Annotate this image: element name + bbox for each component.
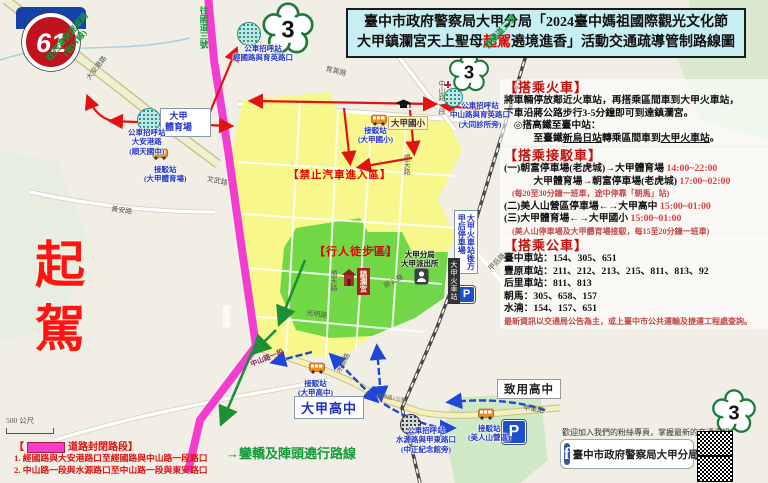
qr-code: [697, 456, 733, 482]
police-icon: [414, 268, 429, 285]
bus-stop-zhongshan-yuying: 公車招呼站 中山路與育英路口 (大同診所旁): [450, 101, 510, 129]
dajia-highschool-label: 大甲高中: [294, 396, 364, 419]
panel-text-segment: (每20至30分鐘一班車，途中停靠「朝馬」站): [504, 189, 669, 198]
panel-line: ◎搭高鐵至臺中站：: [504, 120, 768, 133]
panel-line: (一)朝富停車場(老虎城)→大甲體育場 14:00~22:00: [504, 163, 768, 176]
svg-text:3: 3: [464, 62, 474, 83]
panel-line: 后里車站：811、813: [504, 278, 768, 291]
stadium-label: 大甲 體育場: [160, 108, 211, 137]
panel-text-segment: (美人山停車場及大甲體育場接駁，每15至20分鐘一班車): [504, 227, 709, 236]
temple-icon: [341, 268, 357, 288]
procession-route-note: →鑾轎及陣頭遶行路線: [226, 443, 356, 462]
shuttle-stop-meirenshan: 接駁站 (美人山營區): [468, 424, 511, 443]
panel-text-segment: 豐原車站：211、212、213、215、811、813、92: [504, 266, 709, 277]
panel-line: (三)大甲體育場←→大甲國小 15:00~01:00: [504, 213, 768, 226]
panel-body: 臺中車站：154、305、651豐原車站：211、212、213、215、811…: [504, 253, 768, 328]
panel-line: (每20至30分鐘一班車，途中停靠「朝馬」站): [504, 188, 768, 201]
panel-text-segment: 后里車站：811、813: [504, 278, 592, 289]
panel-line: 至臺鐵新烏日站轉乘區間車到大甲火車站。: [504, 133, 768, 146]
panel-body: 將車輛停放鄰近火車站，再搭乘區間車到大甲火車站，下車沿蔣公路步行3-5分鐘即可到…: [504, 95, 768, 145]
route-jingguo: 經國路: [221, 305, 232, 328]
panel-line: 下車沿蔣公路步行3-5分鐘即可到達鎮瀾宮。: [504, 108, 768, 121]
departure-big-label: 起駕: [20, 238, 92, 366]
shuttle-stop-stadium: 接駁站 (大甲體育場): [144, 165, 187, 184]
panel-line: 水湳：154、157、651: [504, 303, 768, 316]
bus-stop-shuiyuan: 公車招呼站 水源路與甲東路口 (中正紀念館旁): [396, 426, 456, 454]
facebook-search-box[interactable]: f 臺中市政府警察局大甲分局: [560, 439, 694, 469]
scale-line: [6, 428, 54, 434]
panel-line: 朝馬：305、658、157: [504, 291, 768, 304]
bus-stop-daangang: 公車招呼站 大安港路 (順天國中): [128, 128, 166, 156]
panel-body: (一)朝富停車場(老虎城)→大甲體育場 14:00~22:00 大甲體育場→朝富…: [504, 163, 768, 238]
panel-header: 【搭乘火車】: [504, 80, 768, 95]
facebook-page-name: 臺中市政府警察局大甲分局: [573, 447, 699, 462]
graduation-cap-icon: [395, 99, 412, 110]
panel-line: 大甲體育場→朝富停車場(老虎城) 17:00~02:00: [504, 176, 768, 189]
bus-icon: [371, 114, 387, 126]
shuttle-stop-highschool: 接駁站 (大甲高中): [298, 379, 333, 398]
panel-line: (二)美人山營區停車場←→大甲高中 15:00~01:00: [504, 201, 768, 214]
panel-line: 豐原車站：211、212、213、215、811、813、92: [504, 266, 768, 279]
police-station-label: 大甲分局 大甲派出所: [401, 250, 439, 269]
legend-item: 1. 經國路與大安港路口至經國路與中山路一段路口: [14, 453, 208, 465]
route-zhongshan-2: 中山路一段: [437, 80, 447, 115]
bus-icon: [478, 408, 494, 420]
panel-text-segment: ◎搭高鐵至臺中站：: [504, 120, 601, 131]
panel-text-segment: (一)朝富停車場(老虎城)→大甲體育場: [504, 163, 666, 174]
qr-code: [697, 431, 733, 456]
title-line-2: 大甲鎮瀾宮天上聖母: [357, 35, 483, 50]
bus-icon: [309, 362, 325, 374]
title-line-2-rest: 遶境進香」活動交通疏導管制路線圖: [511, 35, 735, 50]
traffic-control-map-poster: 61 3 3 3 臺中市政府警察局大甲分局「2024臺中媽祖國際觀光文化節 大甲…: [0, 0, 768, 483]
panel-bus: 【搭乘公車】 臺中車站：154、305、651豐原車站：211、212、213、…: [500, 237, 768, 329]
panel-text-segment: 14:00~22:00: [666, 163, 717, 174]
panel-line: 臺中車站：154、305、651: [504, 253, 768, 266]
legend-items: 1. 經國路與大安港路口至經國路與中山路一段路口2. 中山路一段與水源路口至中山…: [14, 453, 208, 476]
jenn-lann-temple-label: 鎮瀾宮: [357, 268, 370, 295]
closed-road-swatch: [27, 442, 65, 453]
parking-icon: P: [458, 286, 475, 303]
panel-text-segment: 下車沿蔣公路步行3-5分鐘即可到達鎮瀾宮。: [504, 108, 693, 119]
panel-train: 【搭乘火車】 將車輛停放鄰近火車站，再搭乘區間車到大甲火車站，下車沿蔣公路步行3…: [500, 79, 768, 146]
panel-line: 最新資訊以交通局公告為主，或上臺中市公共運輸及捷運工程處查詢。: [504, 316, 768, 329]
panel-text-segment: 15:00~01:00: [631, 213, 682, 224]
dajia-elementary-label: 大甲國小: [388, 116, 428, 130]
panel-text-segment: 臺中車站：154、305、651: [504, 253, 617, 264]
panel-text-segment: 17:00~02:00: [680, 176, 731, 187]
panel-text-segment: 大甲火車站: [661, 133, 710, 144]
bus-stop-jingguo-yuying: 公車招呼站 經國路與育英路口: [233, 44, 293, 63]
map-scale: 500 公尺: [6, 415, 54, 434]
route-shuntian-1: 順天路: [329, 270, 339, 291]
train-station-label: 大甲火車站: [448, 258, 460, 304]
road-bottomleft-casing: [55, 380, 330, 440]
title-line-1: 臺中市政府警察局大甲分局「2024臺中媽祖國際觀光文化節: [364, 15, 728, 30]
panel-text-segment: 將車輛停放鄰近火車站，再搭乘區間車到大甲火車站，: [504, 95, 739, 106]
panel-header: 【搭乘接駁車】: [504, 148, 768, 163]
panel-text-segment: 。: [710, 133, 720, 144]
panel-text-segment: 轉乘區間車到: [602, 133, 661, 144]
panel-text-segment: 大甲體育場→朝富停車場(老虎城): [504, 176, 680, 187]
panel-shuttle: 【搭乘接駁車】 (一)朝富停車場(老虎城)→大甲體育場 14:00~22:00 …: [500, 147, 768, 239]
panel-text-segment: 至臺鐵: [504, 133, 563, 144]
panel-text-segment: 朝馬：305、658、157: [504, 291, 597, 302]
panel-text-segment: 新烏日站: [563, 133, 602, 144]
legend-item: 2. 中山路一段與水源路口至中山路一段與東安路口: [14, 465, 208, 477]
panel-text-segment: (二)美人山營區停車場←→大甲高中: [504, 201, 660, 212]
panel-line: 將車輛停放鄰近火車站，再搭乘區間車到大甲火車站，: [504, 95, 768, 108]
road-closure-legend: 【道路封閉路段】 1. 經國路與大安港路口至經國路與中山路一段路口2. 中山路一…: [14, 438, 208, 476]
route-shuntian-2: 順天路: [402, 154, 412, 175]
no-car-zone-label: 【禁止汽車進入區】: [288, 167, 392, 182]
panel-text-segment: 15:00~01:00: [660, 201, 711, 212]
svg-text:3: 3: [728, 402, 739, 424]
legend-title: 【道路封閉路段】: [14, 438, 208, 453]
freeway3-direction-north: 往國道三號: [198, 6, 210, 49]
poster-title: 臺中市政府警察局大甲分局「2024臺中媽祖國際觀光文化節 大甲鎮瀾宮天上聖母起駕…: [346, 8, 746, 58]
facebook-icon: f: [564, 443, 570, 465]
panel-text-segment: 最新資訊以交通局公告為主，或上臺中市公共運輸及捷運工程處查詢。: [504, 317, 752, 326]
assembly-area-marker: [237, 22, 261, 46]
panel-text-segment: (三)大甲體育場←→大甲國小: [504, 213, 631, 224]
svg-text:3: 3: [281, 18, 294, 44]
zhiyong-highschool-label: 致用高中: [497, 379, 561, 399]
panel-header: 【搭乘公車】: [504, 238, 768, 253]
scale-label: 500 公尺: [6, 416, 34, 425]
panel-text-segment: 水湳：154、157、651: [504, 303, 597, 314]
